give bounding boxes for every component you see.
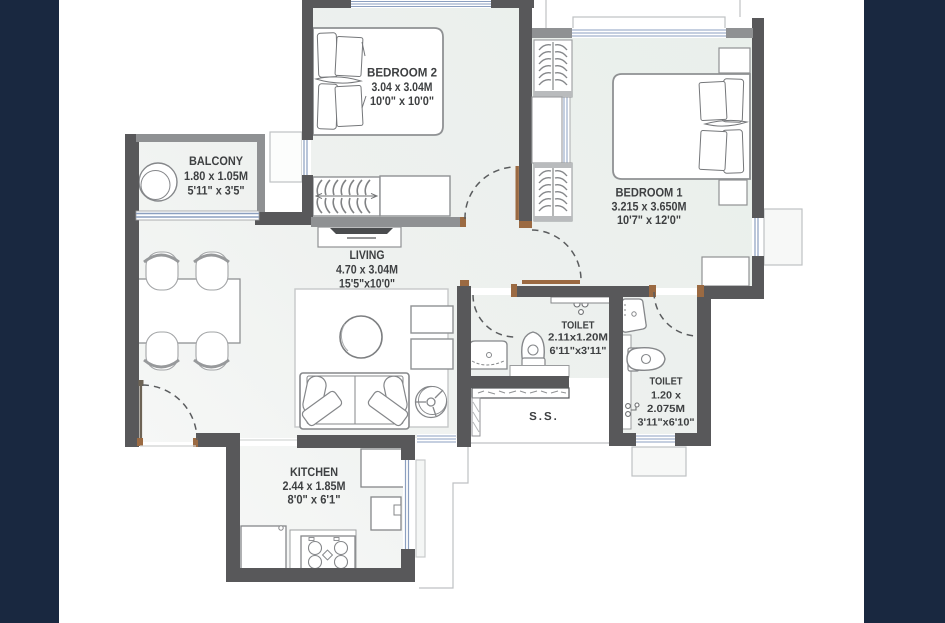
svg-text:S.S.: S.S. <box>529 411 559 423</box>
svg-text:4.70 x 3.04M: 4.70 x 3.04M <box>336 263 398 277</box>
svg-text:15'5"x10'0": 15'5"x10'0" <box>339 277 395 291</box>
svg-text:2.11x1.20M: 2.11x1.20M <box>548 333 608 344</box>
svg-text:2.44 x 1.85M: 2.44 x 1.85M <box>283 479 346 493</box>
svg-text:2.075M: 2.075M <box>647 404 685 415</box>
svg-text:TOILET: TOILET <box>562 321 596 332</box>
svg-text:1.20 x: 1.20 x <box>651 390 681 401</box>
svg-text:BEDROOM 2: BEDROOM 2 <box>367 66 437 80</box>
svg-text:10'0" x 10'0": 10'0" x 10'0" <box>370 94 434 108</box>
svg-text:10'7" x 12'0": 10'7" x 12'0" <box>617 213 681 227</box>
svg-text:LIVING: LIVING <box>350 248 385 262</box>
svg-text:3.215 x 3.650M: 3.215 x 3.650M <box>612 200 687 214</box>
svg-text:BEDROOM 1: BEDROOM 1 <box>616 186 683 200</box>
svg-text:1.80 x 1.05M: 1.80 x 1.05M <box>184 169 248 183</box>
svg-text:TOILET: TOILET <box>650 377 684 388</box>
svg-text:8'0" x 6'1": 8'0" x 6'1" <box>288 493 341 507</box>
svg-text:BALCONY: BALCONY <box>189 154 244 168</box>
svg-text:3.04 x 3.04M: 3.04 x 3.04M <box>372 80 433 94</box>
svg-text:KITCHEN: KITCHEN <box>290 465 338 479</box>
svg-text:6'11"x3'11": 6'11"x3'11" <box>550 346 607 357</box>
svg-text:5'11" x 3'5": 5'11" x 3'5" <box>188 183 245 197</box>
svg-text:3'11"x6'10": 3'11"x6'10" <box>638 418 695 429</box>
